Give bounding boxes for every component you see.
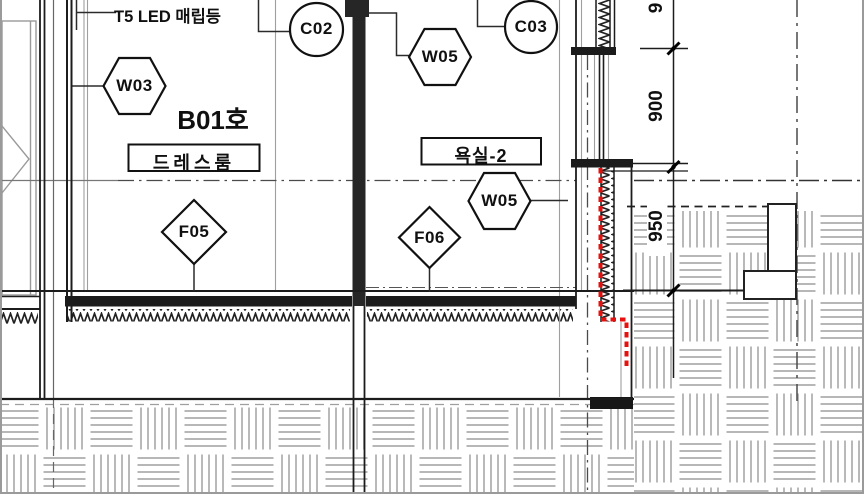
dimension-text-900: 900 <box>647 76 667 136</box>
note-t5-led: T5 LED 매립등 <box>114 3 221 27</box>
dimension-text-950: 950 <box>647 196 667 256</box>
closet-panel <box>2 21 36 295</box>
finish-lines <box>0 0 634 405</box>
floorplan-canvas: T5 LED 매립등 B01호 드레스룸 욕실-2 W03 C02 W05 C0… <box>0 0 864 494</box>
symbol-label-c02: C02 <box>286 20 347 38</box>
dimension-text-partial: 9 <box>647 0 667 38</box>
drawing-linework <box>0 0 864 494</box>
room-bath-label: 욕실-2 <box>421 142 541 168</box>
symbol-label-f06: F06 <box>399 229 460 247</box>
symbol-label-w03: W03 <box>104 77 165 95</box>
symbol-label-f05: F05 <box>164 223 224 241</box>
symbol-label-w05-upper: W05 <box>410 48 470 66</box>
room-dress-label: 드레스룸 <box>128 149 260 175</box>
symbol-label-c03: C03 <box>501 18 561 36</box>
room-unit-label: B01호 <box>160 100 266 137</box>
symbol-label-w05-lower: W05 <box>469 192 530 210</box>
